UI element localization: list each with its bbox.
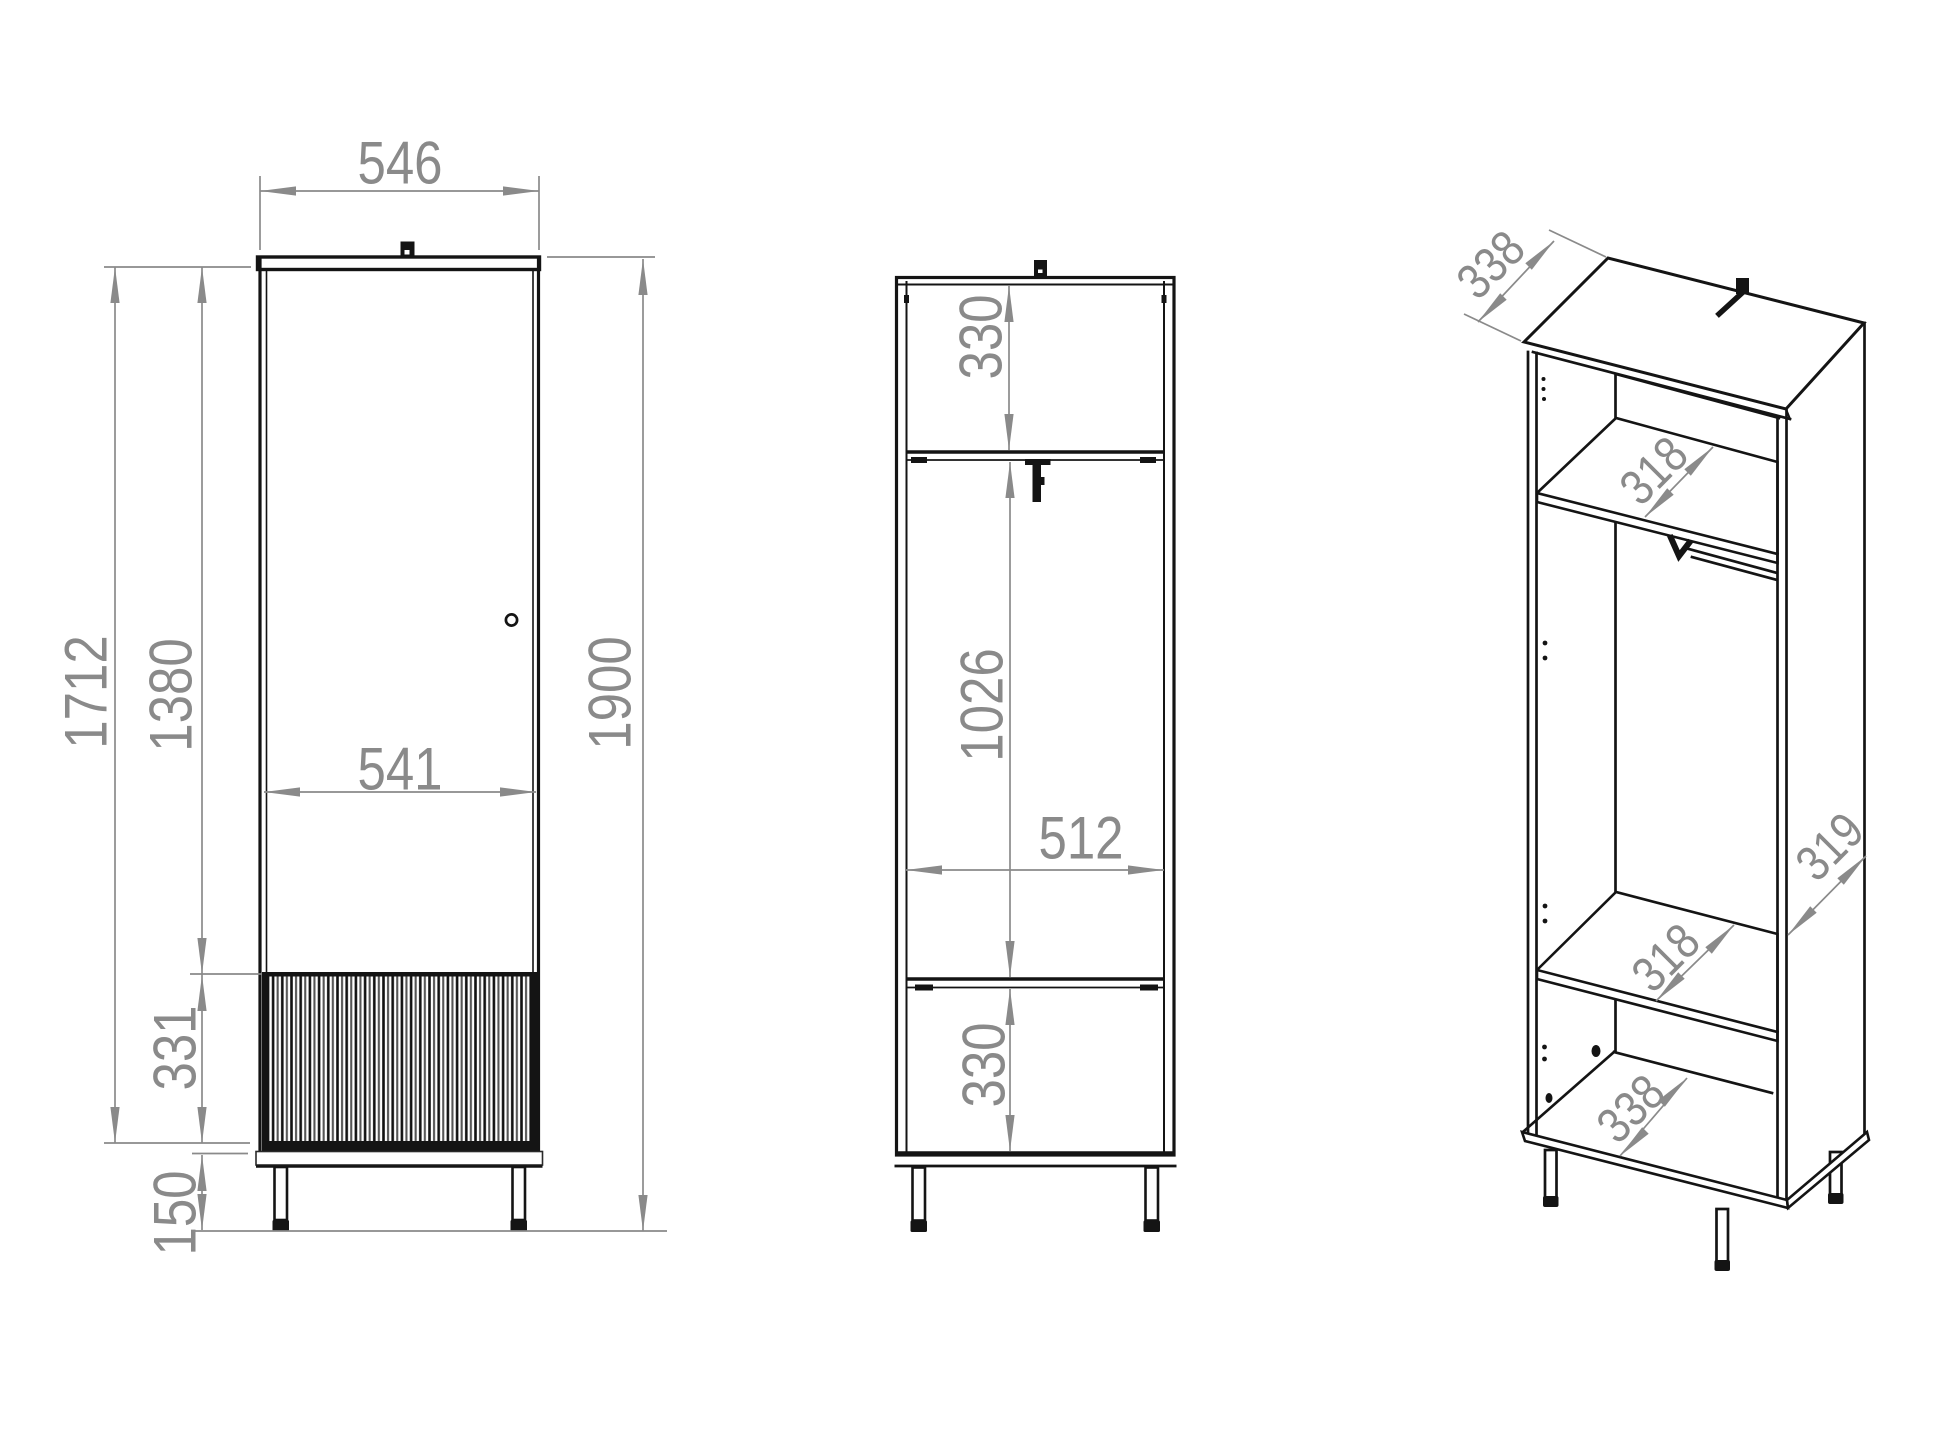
svg-text:330: 330 bbox=[948, 294, 1015, 379]
svg-text:331: 331 bbox=[142, 1005, 209, 1090]
svg-text:1026: 1026 bbox=[949, 648, 1016, 761]
svg-text:512: 512 bbox=[1038, 805, 1123, 872]
svg-text:546: 546 bbox=[357, 130, 442, 197]
svg-text:1900: 1900 bbox=[577, 636, 644, 749]
svg-text:150: 150 bbox=[142, 1170, 209, 1255]
svg-text:1712: 1712 bbox=[53, 635, 120, 748]
svg-text:330: 330 bbox=[951, 1022, 1018, 1107]
svg-text:1380: 1380 bbox=[138, 638, 205, 751]
svg-text:541: 541 bbox=[357, 736, 442, 803]
